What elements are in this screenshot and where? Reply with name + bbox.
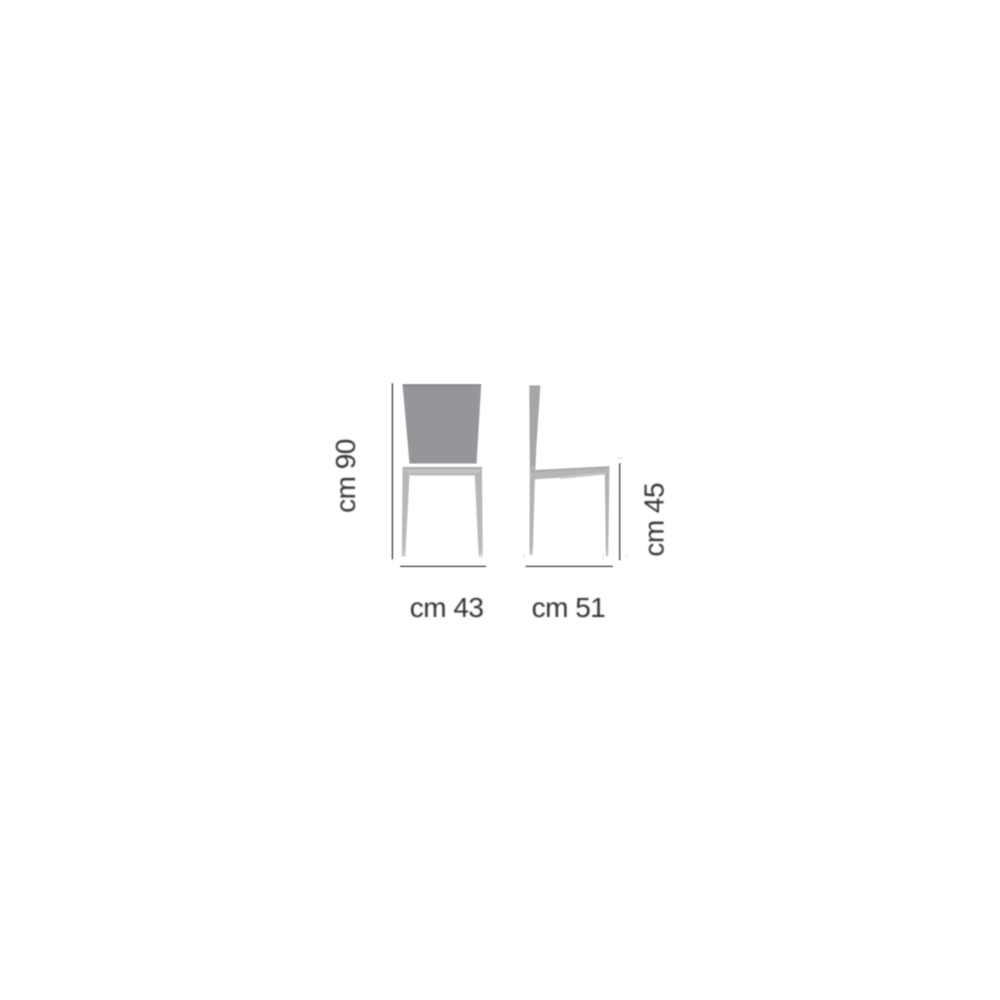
svg-text:cm 45: cm 45 bbox=[638, 483, 669, 557]
svg-text:cm 43: cm 43 bbox=[410, 592, 484, 623]
svg-text:cm 90: cm 90 bbox=[330, 439, 361, 513]
svg-text:cm 51: cm 51 bbox=[532, 592, 606, 623]
